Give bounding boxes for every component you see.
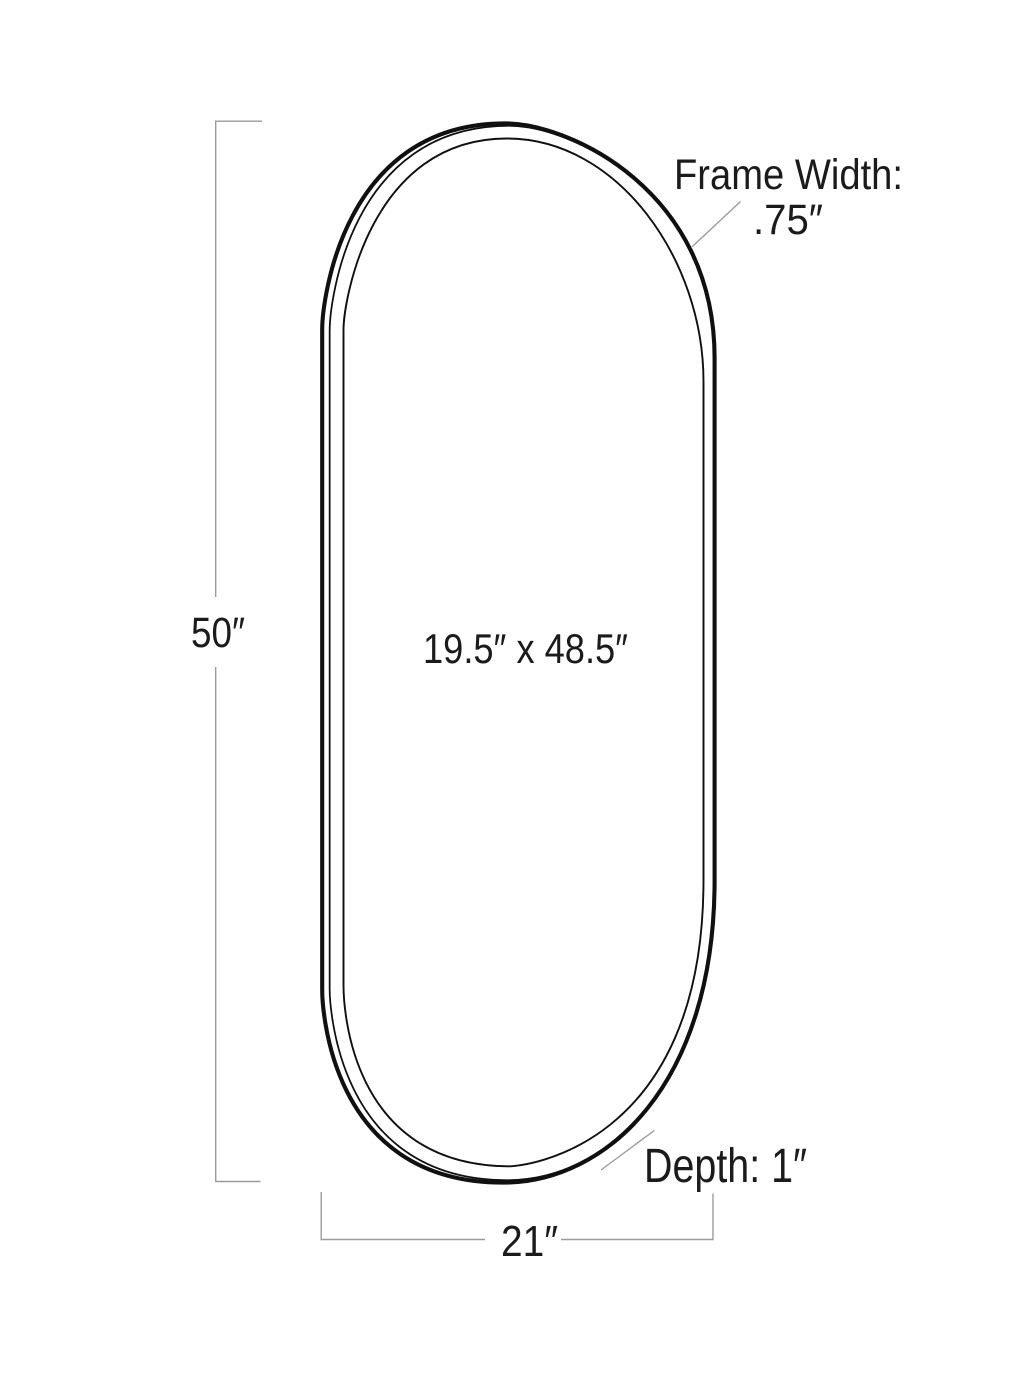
svg-text:Frame Width:: Frame Width: bbox=[674, 151, 903, 199]
svg-text:21″: 21″ bbox=[501, 1217, 558, 1266]
svg-text:.75″: .75″ bbox=[753, 196, 823, 244]
svg-text:19.5″ x 48.5″: 19.5″ x 48.5″ bbox=[423, 625, 628, 672]
svg-text:50″: 50″ bbox=[191, 609, 245, 657]
svg-text:Depth: 1″: Depth: 1″ bbox=[644, 1140, 807, 1193]
